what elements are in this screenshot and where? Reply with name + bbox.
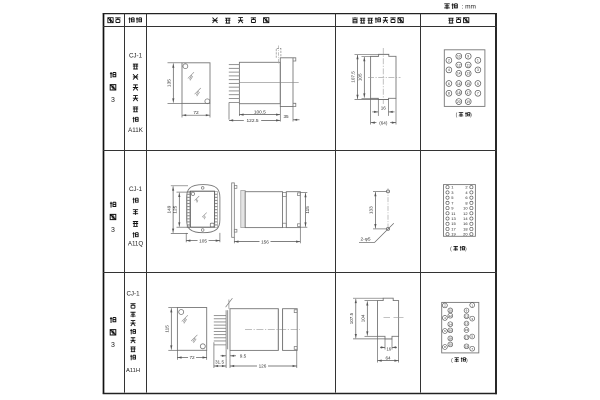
svg-text:18: 18 [457, 91, 461, 95]
svg-text:20: 20 [457, 100, 461, 104]
svg-text:15: 15 [465, 328, 469, 332]
svg-text:7: 7 [477, 92, 479, 96]
svg-text:12: 12 [457, 63, 461, 67]
svg-text:A11Q: A11Q [128, 240, 144, 247]
svg-text:CJ-1: CJ-1 [126, 290, 140, 297]
svg-text:(64): (64) [379, 120, 388, 125]
svg-text:156: 156 [261, 239, 269, 244]
svg-text:19: 19 [466, 100, 470, 104]
svg-text:A11K: A11K [128, 127, 144, 134]
svg-text:16: 16 [386, 347, 391, 352]
svg-text:72: 72 [193, 110, 199, 116]
svg-text:9: 9 [467, 55, 469, 59]
svg-text:9.5: 9.5 [240, 353, 247, 358]
svg-text:64: 64 [385, 355, 391, 360]
svg-text:105: 105 [357, 73, 362, 81]
svg-text:: mm: : mm [462, 4, 476, 11]
svg-text:100.5: 100.5 [254, 109, 266, 115]
svg-text:122.5: 122.5 [246, 118, 258, 124]
svg-text:126: 126 [259, 364, 267, 369]
svg-text:5: 5 [477, 82, 479, 86]
svg-text:2-φ5: 2-φ5 [360, 237, 370, 243]
svg-text:6: 6 [448, 82, 450, 86]
svg-text:16: 16 [457, 82, 461, 86]
svg-text:17: 17 [466, 91, 470, 95]
svg-text:1: 1 [477, 59, 479, 63]
svg-text:3: 3 [111, 227, 115, 234]
svg-text:A11H: A11H [126, 368, 140, 374]
svg-text:105: 105 [199, 238, 207, 243]
svg-text:16: 16 [381, 105, 387, 110]
svg-text:20: 20 [463, 232, 468, 237]
svg-text:16: 16 [449, 329, 453, 333]
svg-text:125: 125 [173, 205, 178, 213]
svg-text:CJ-1: CJ-1 [129, 186, 143, 193]
svg-text:15: 15 [466, 82, 470, 86]
svg-text:115: 115 [305, 206, 310, 214]
svg-text:14: 14 [457, 72, 461, 76]
svg-text:31.5: 31.5 [215, 359, 225, 364]
svg-text:135: 135 [166, 79, 172, 87]
svg-text:14: 14 [449, 322, 453, 326]
svg-text:18: 18 [449, 337, 453, 341]
svg-text:10: 10 [449, 309, 453, 313]
svg-text:13: 13 [465, 322, 469, 326]
svg-text:19: 19 [465, 345, 469, 349]
svg-text:10: 10 [457, 55, 461, 59]
svg-text:104: 104 [361, 314, 366, 322]
svg-text:2: 2 [448, 59, 450, 63]
svg-text:17: 17 [465, 336, 469, 340]
svg-text:107.5: 107.5 [351, 71, 356, 83]
svg-text:20: 20 [449, 343, 453, 347]
svg-text:12: 12 [449, 314, 453, 318]
svg-text:3: 3 [111, 97, 115, 104]
svg-text:35: 35 [283, 114, 289, 119]
svg-text:13: 13 [466, 72, 470, 76]
svg-text:72: 72 [189, 355, 195, 360]
svg-text:107.5: 107.5 [349, 312, 354, 324]
svg-text:11: 11 [465, 314, 468, 318]
svg-text:3: 3 [477, 68, 479, 72]
svg-text:11: 11 [467, 63, 471, 67]
svg-text:133: 133 [369, 206, 374, 214]
svg-text:8: 8 [448, 92, 450, 96]
svg-text:CJ-1: CJ-1 [129, 53, 143, 60]
svg-text:19: 19 [451, 232, 456, 237]
svg-text:4: 4 [448, 68, 450, 72]
svg-text:149: 149 [166, 205, 171, 213]
svg-text:115: 115 [165, 325, 170, 333]
svg-text:3: 3 [111, 342, 115, 349]
